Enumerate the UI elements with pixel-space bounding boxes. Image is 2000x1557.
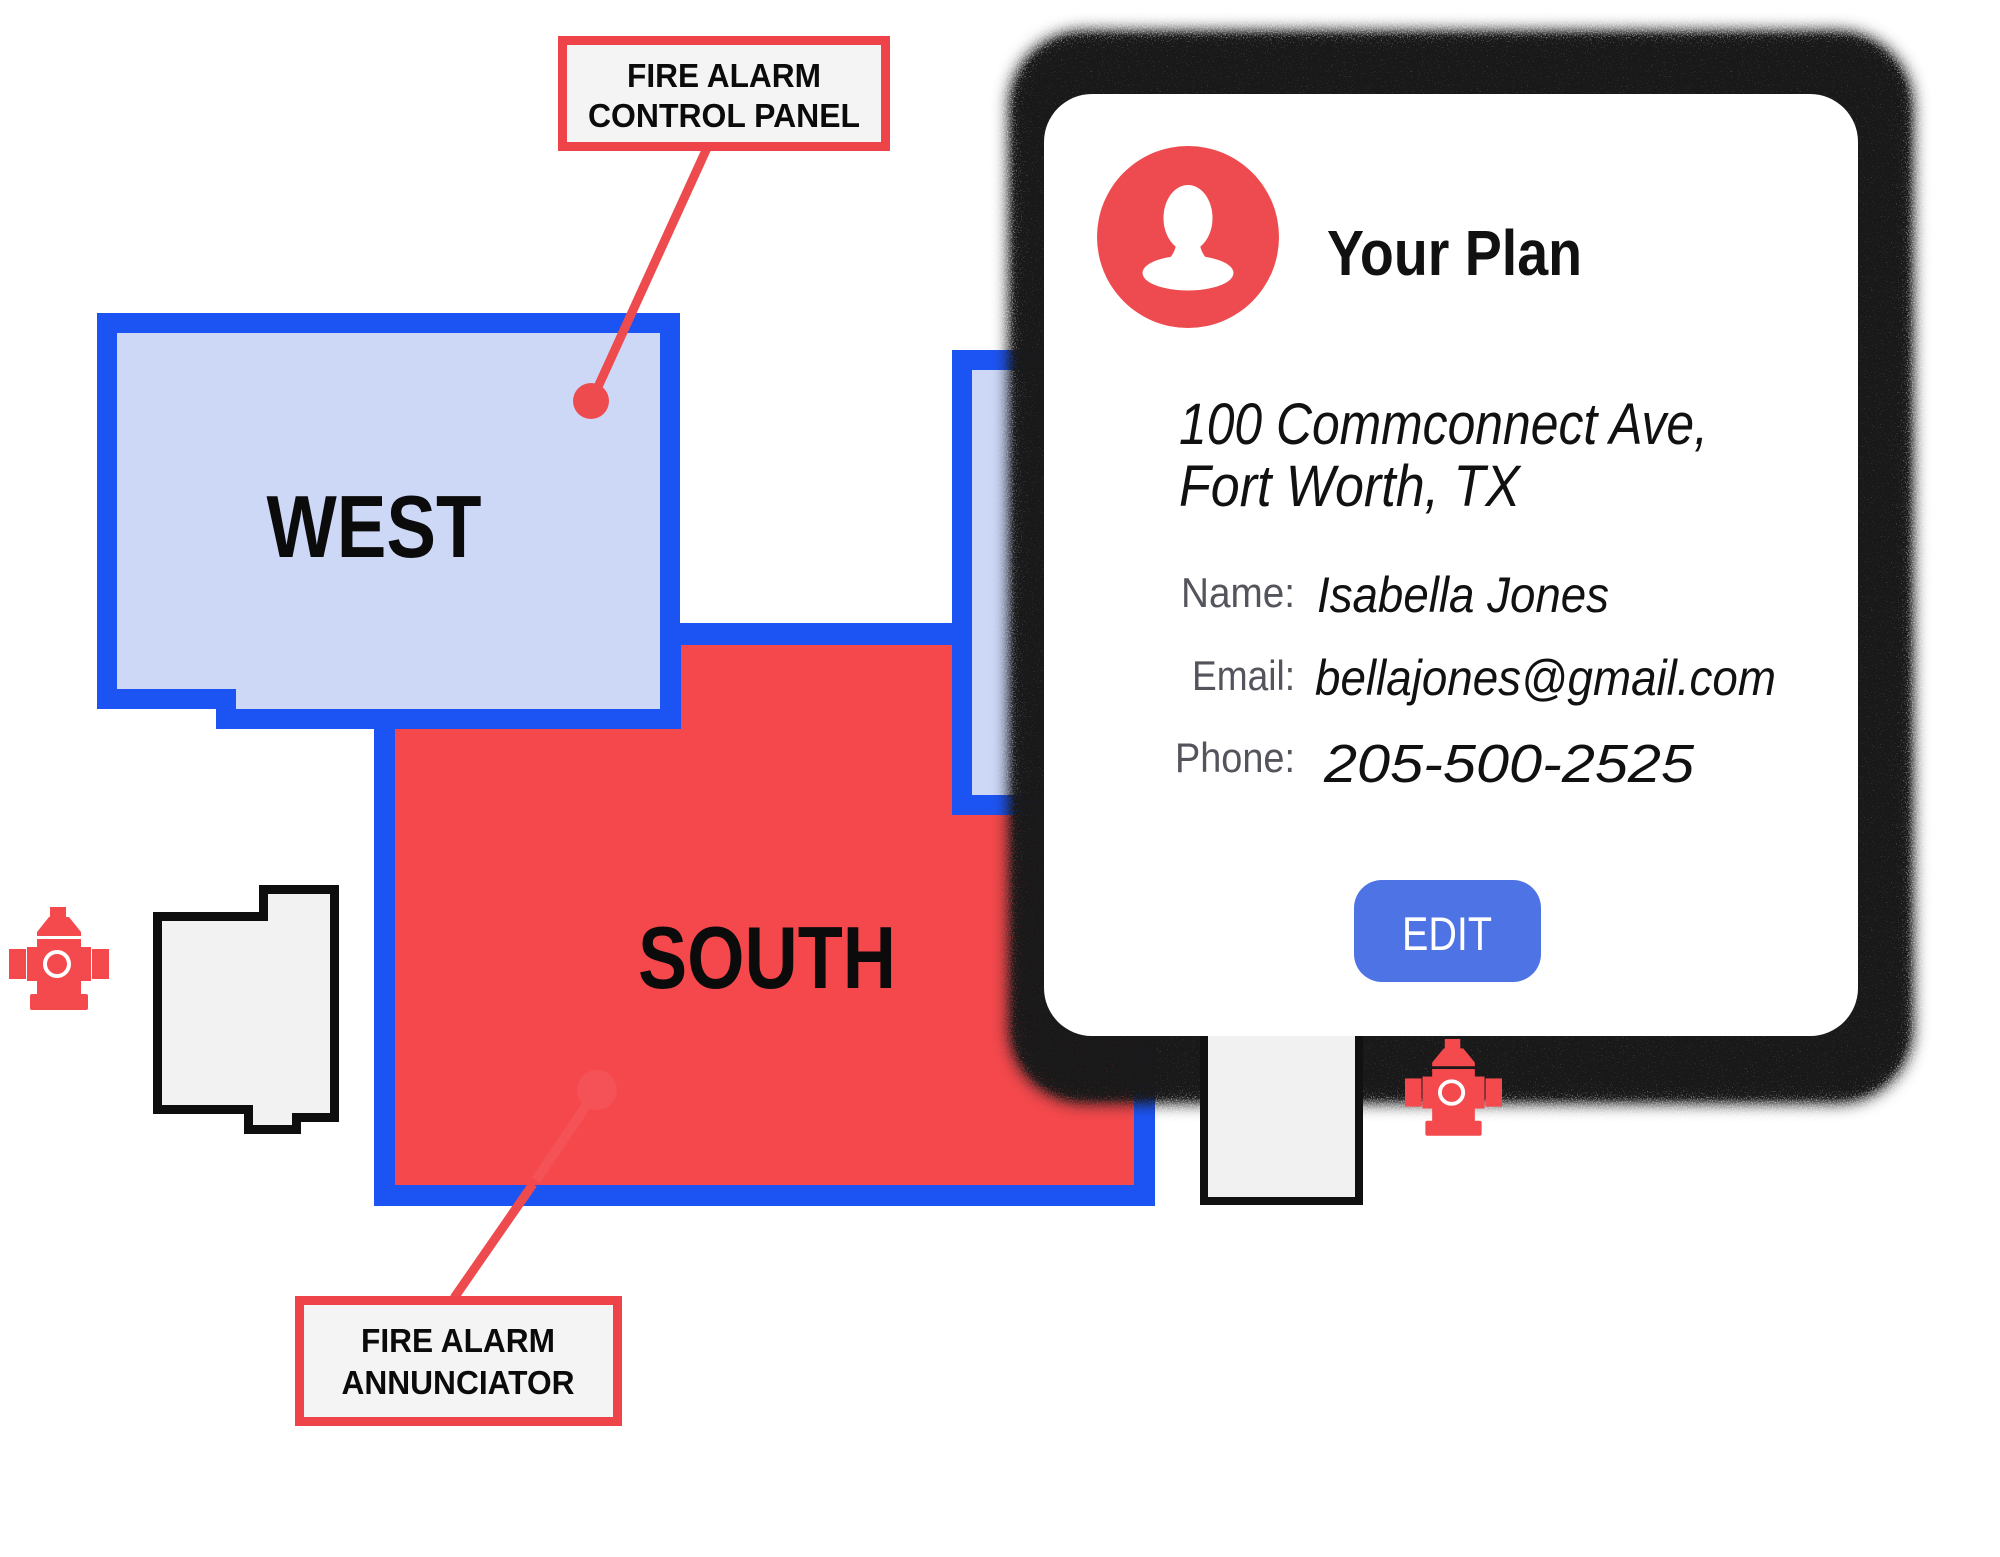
svg-text:FIRE ALARM: FIRE ALARM (627, 57, 821, 94)
svg-text:FIRE ALARM: FIRE ALARM (361, 1322, 555, 1359)
svg-text:100 Commconnect Ave,: 100 Commconnect Ave, (1179, 392, 1708, 457)
svg-text:SOUTH: SOUTH (638, 908, 896, 1007)
svg-text:bellajones@gmail.com: bellajones@gmail.com (1315, 650, 1776, 706)
svg-text:WEST: WEST (267, 477, 482, 576)
svg-text:ANNUNCIATOR: ANNUNCIATOR (342, 1364, 575, 1401)
svg-text:Fort Worth, TX: Fort Worth, TX (1179, 454, 1522, 519)
svg-text:Name:: Name: (1181, 569, 1295, 616)
svg-text:Your Plan: Your Plan (1327, 217, 1582, 289)
svg-text:205-500-2525: 205-500-2525 (1323, 734, 1695, 794)
svg-text:EDIT: EDIT (1402, 907, 1492, 960)
svg-text:Isabella Jones: Isabella Jones (1317, 567, 1609, 623)
svg-text:CONTROL PANEL: CONTROL PANEL (588, 97, 860, 134)
svg-text:Email:: Email: (1192, 652, 1295, 699)
svg-text:Phone:: Phone: (1175, 734, 1295, 781)
